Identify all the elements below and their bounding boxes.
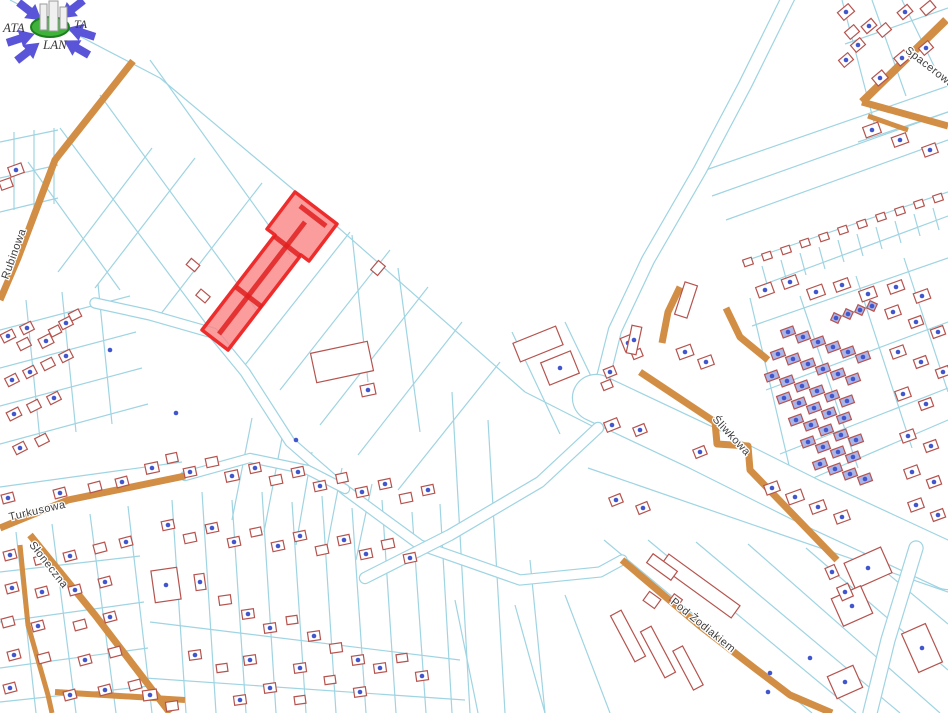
building — [857, 219, 868, 229]
address-point-dot — [808, 656, 813, 661]
address-point-dot — [610, 423, 615, 428]
address-point-dot — [698, 450, 703, 455]
address-point-dot — [801, 335, 806, 340]
address-point-dot — [793, 495, 798, 500]
building — [329, 643, 342, 654]
building — [640, 626, 675, 678]
parcel-line — [857, 234, 863, 256]
address-point-dot — [10, 586, 15, 591]
address-point-dot — [614, 498, 619, 503]
address-point-dot — [238, 698, 243, 703]
parcel-line — [58, 148, 152, 272]
building — [73, 619, 87, 631]
address-point-dot — [8, 686, 13, 691]
building — [294, 695, 306, 704]
address-point-dot — [426, 488, 431, 493]
parcel-line — [0, 130, 58, 142]
address-point-dot — [851, 377, 856, 382]
address-point-dot — [914, 503, 919, 508]
address-point-dot — [834, 316, 839, 321]
address-point-dot — [198, 580, 203, 585]
parcel-line — [712, 112, 948, 196]
building — [0, 178, 13, 191]
address-dots-layer — [108, 348, 813, 695]
parcel-line — [914, 214, 920, 236]
address-point-dot — [919, 360, 924, 365]
address-point-dot — [858, 308, 863, 313]
address-point-dot — [782, 396, 787, 401]
parcel-lines-layer — [0, 0, 948, 713]
address-point-dot — [174, 411, 179, 416]
address-point-dot — [824, 428, 829, 433]
address-point-dot — [929, 444, 934, 449]
address-point-dot — [358, 690, 363, 695]
address-point-dot — [10, 378, 15, 383]
address-point-dot — [608, 370, 613, 375]
address-point-dot — [193, 653, 198, 658]
address-point-dot — [861, 355, 866, 360]
address-point-dot — [342, 538, 347, 543]
address-point-dot — [924, 402, 929, 407]
address-point-dot — [108, 615, 113, 620]
address-point-dot — [558, 366, 563, 371]
address-point-dot — [836, 450, 841, 455]
address-point-dot — [850, 604, 855, 609]
address-point-dot — [6, 496, 11, 501]
address-point-dot — [298, 666, 303, 671]
parcel-line — [515, 605, 545, 713]
parcel-line — [352, 508, 366, 713]
address-point-dot — [120, 480, 125, 485]
building — [216, 663, 228, 672]
building — [781, 245, 792, 255]
address-point-dot — [821, 367, 826, 372]
address-point-dot — [891, 310, 896, 315]
address-point-dot — [124, 540, 129, 545]
address-point-dot — [364, 552, 369, 557]
parcel-line — [100, 95, 258, 312]
address-point-dot — [770, 374, 775, 379]
address-point-dot — [12, 653, 17, 658]
building — [933, 193, 944, 203]
address-point-dot — [846, 312, 851, 317]
address-point-dot — [188, 470, 193, 475]
address-point-dot — [318, 484, 323, 489]
parcel-line — [800, 253, 806, 275]
address-point-dot — [809, 423, 814, 428]
address-point-dot — [383, 482, 388, 487]
street-label: Turkusowa — [8, 499, 67, 524]
building — [17, 337, 32, 350]
building — [108, 646, 122, 658]
address-point-dot — [366, 388, 371, 393]
building — [269, 474, 283, 485]
logo-text-bottom: LAN — [42, 37, 68, 52]
address-point-dot — [830, 570, 835, 575]
address-point-dot — [827, 411, 832, 416]
map-screenshot: RubinowaTurkusowaSłonecznaŚliwkowaPod Żo… — [0, 0, 948, 713]
building — [186, 258, 200, 271]
address-point-dot — [770, 486, 775, 491]
address-point-dot — [840, 283, 845, 288]
address-point-dot — [763, 288, 768, 293]
building — [396, 653, 408, 662]
address-point-dot — [683, 350, 688, 355]
address-point-dot — [928, 148, 933, 153]
address-point-dot — [863, 477, 868, 482]
building — [166, 452, 179, 463]
address-point-dot — [870, 128, 875, 133]
building — [324, 675, 336, 684]
address-point-dot — [794, 418, 799, 423]
address-point-dot — [901, 392, 906, 397]
address-point-dot — [797, 401, 802, 406]
address-point-dot — [420, 674, 425, 679]
address-point-dot — [253, 466, 258, 471]
building — [743, 257, 754, 267]
address-point-dot — [854, 438, 859, 443]
address-point-dot — [848, 472, 853, 477]
address-point-dot — [941, 370, 946, 375]
address-point-dot — [842, 416, 847, 421]
address-point-dot — [936, 330, 941, 335]
address-point-dot — [816, 505, 821, 510]
parcel-line — [0, 198, 58, 212]
address-point-dot — [638, 428, 643, 433]
address-point-dot — [840, 515, 845, 520]
building — [914, 199, 925, 209]
address-point-dot — [296, 470, 301, 475]
road-surface — [365, 428, 598, 578]
address-point-dot — [932, 480, 937, 485]
building — [196, 289, 210, 303]
building — [311, 341, 374, 382]
parcel-line — [0, 602, 144, 622]
address-point-dot — [815, 389, 820, 394]
parcel-line — [933, 208, 939, 230]
address-point-dot — [776, 352, 781, 357]
address-point-dot — [818, 462, 823, 467]
address-point-dot — [856, 43, 861, 48]
address-point-dot — [28, 370, 33, 375]
address-point-dot — [791, 357, 796, 362]
parcel-line — [455, 600, 478, 713]
building — [165, 701, 178, 712]
address-point-dot — [68, 554, 73, 559]
building — [895, 206, 906, 216]
address-point-dot — [844, 10, 849, 15]
address-point-dot — [632, 338, 637, 343]
building — [336, 472, 349, 483]
address-point-dot — [830, 394, 835, 399]
address-point-dot — [276, 544, 281, 549]
address-point-dot — [870, 304, 875, 309]
building — [250, 527, 262, 537]
address-point-dot — [230, 474, 235, 479]
building — [128, 679, 142, 691]
address-point-dot — [148, 693, 153, 698]
building — [41, 357, 56, 370]
address-point-dot — [920, 294, 925, 299]
address-point-dot — [910, 470, 915, 475]
address-point-dot — [232, 540, 237, 545]
address-point-dot — [806, 362, 811, 367]
address-point-dot — [25, 326, 30, 331]
address-point-dot — [248, 658, 253, 663]
address-point-dot — [836, 372, 841, 377]
address-point-dot — [894, 285, 899, 290]
address-point-dot — [641, 506, 646, 511]
address-point-dot — [68, 693, 73, 698]
address-point-dot — [900, 56, 905, 61]
address-point-dot — [268, 626, 273, 631]
address-point-dot — [18, 446, 23, 451]
address-point-dot — [846, 350, 851, 355]
address-point-dot — [64, 321, 69, 326]
building — [399, 492, 413, 503]
address-point-dot — [40, 590, 45, 595]
address-point-dot — [831, 345, 836, 350]
address-point-dot — [843, 590, 848, 595]
buildings-layer — [0, 0, 948, 711]
address-point-dot — [12, 412, 17, 417]
parcel-line — [876, 227, 882, 249]
logo-city-buildings-icon — [40, 1, 67, 31]
building — [877, 23, 892, 38]
building — [183, 532, 197, 543]
building — [838, 225, 849, 235]
building — [845, 25, 860, 40]
address-point-dot — [867, 24, 872, 29]
address-point-dot — [246, 612, 251, 617]
address-point-dot — [833, 467, 838, 472]
address-point-dot — [914, 320, 919, 325]
parcel-line — [95, 158, 195, 288]
cadastral-map[interactable]: RubinowaTurkusowaSłonecznaŚliwkowaPod Żo… — [0, 0, 948, 713]
address-point-dot — [704, 360, 709, 365]
address-point-dot — [268, 686, 273, 691]
building — [610, 610, 645, 662]
address-point-dot — [768, 671, 773, 676]
address-point-dot — [166, 523, 171, 528]
street-label: Słoneczna — [26, 539, 70, 591]
paved-road — [862, 102, 948, 126]
address-point-dot — [52, 396, 57, 401]
building — [800, 238, 811, 248]
address-point-dot — [14, 168, 19, 173]
address-point-dot — [924, 46, 929, 51]
address-point-dot — [866, 292, 871, 297]
building — [205, 456, 219, 467]
address-point-dot — [378, 666, 383, 671]
address-point-dot — [8, 553, 13, 558]
parcel-line — [262, 492, 276, 713]
address-point-dot — [851, 455, 856, 460]
building — [93, 542, 107, 554]
building — [371, 261, 386, 276]
address-point-dot — [103, 688, 108, 693]
address-point-dot — [896, 350, 901, 355]
highlight-layer — [202, 192, 337, 350]
address-point-dot — [906, 434, 911, 439]
building — [315, 544, 329, 555]
parcel-line — [398, 268, 420, 432]
address-point-dot — [839, 433, 844, 438]
address-point-dot — [103, 580, 108, 585]
address-point-dot — [812, 406, 817, 411]
address-point-dot — [298, 534, 303, 539]
address-point-dot — [312, 634, 317, 639]
parcel-line — [819, 247, 825, 269]
building — [381, 538, 395, 549]
address-point-dot — [73, 588, 78, 593]
building — [35, 433, 50, 446]
address-point-dot — [164, 583, 169, 588]
agency-logo-watermark: ATA TA LAN — [0, 0, 112, 64]
address-point-dot — [294, 438, 299, 443]
address-point-dot — [843, 680, 848, 685]
address-point-dot — [150, 466, 155, 471]
parcel-line — [895, 221, 901, 243]
paved-road — [726, 308, 768, 360]
address-point-dot — [58, 491, 63, 496]
address-point-dot — [788, 280, 793, 285]
logo-text-left: ATA — [2, 20, 25, 35]
parcel-line — [565, 595, 610, 713]
building — [876, 212, 887, 222]
address-point-dot — [844, 58, 849, 63]
highlighted-parcel-division — [219, 222, 305, 334]
address-point-dot — [936, 513, 941, 518]
address-point-dot — [36, 624, 41, 629]
parcel-line — [232, 500, 246, 713]
address-point-dot — [920, 646, 925, 651]
building — [27, 399, 42, 412]
building — [673, 646, 703, 690]
building — [1, 616, 15, 628]
address-point-dot — [821, 445, 826, 450]
address-point-dot — [800, 384, 805, 389]
address-point-dot — [816, 340, 821, 345]
address-point-dot — [766, 690, 771, 695]
address-point-dot — [878, 76, 883, 81]
address-point-dot — [6, 334, 11, 339]
address-point-dot — [866, 566, 871, 571]
building — [762, 251, 773, 261]
address-point-dot — [814, 290, 819, 295]
address-point-dot — [903, 10, 908, 15]
address-point-dot — [785, 379, 790, 384]
parcel-line — [60, 128, 213, 333]
address-point-dot — [356, 658, 361, 663]
address-point-dot — [845, 399, 850, 404]
parcel-line — [28, 162, 120, 290]
building — [819, 232, 830, 242]
address-point-dot — [898, 138, 903, 143]
building — [286, 615, 298, 624]
building — [218, 595, 231, 606]
logo-text-right: TA — [74, 17, 88, 31]
address-point-dot — [360, 490, 365, 495]
address-point-dot — [44, 339, 49, 344]
address-point-dot — [408, 556, 413, 561]
parcel-line — [838, 240, 844, 262]
address-point-dot — [210, 526, 215, 531]
address-point-dot — [786, 330, 791, 335]
building — [37, 652, 51, 664]
address-point-dot — [108, 348, 113, 353]
address-point-dot — [83, 658, 88, 663]
address-point-dot — [806, 440, 811, 445]
address-point-dot — [64, 354, 69, 359]
